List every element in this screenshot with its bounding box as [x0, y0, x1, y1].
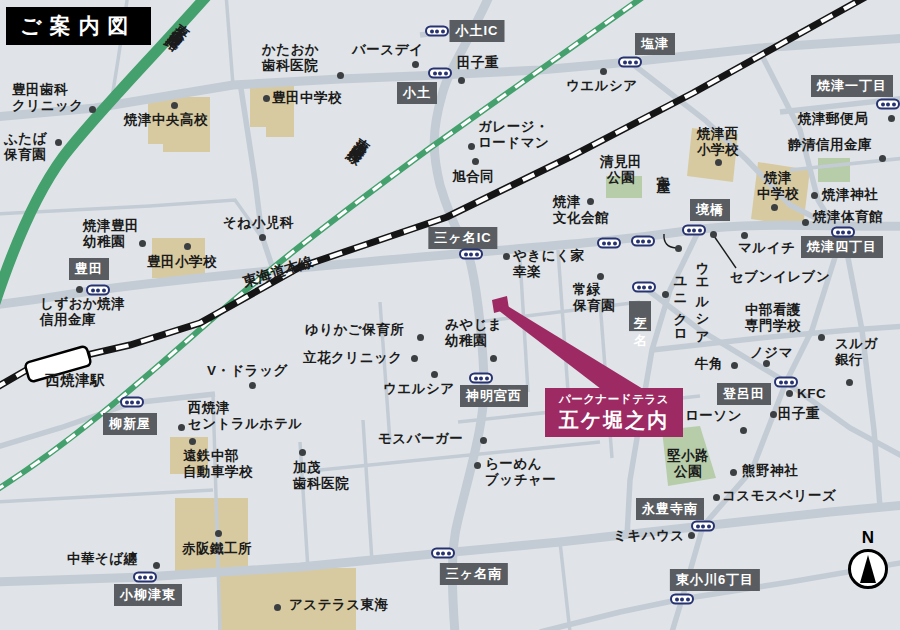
traffic-signal-icon [876, 99, 900, 110]
traffic-signal-icon [597, 238, 621, 249]
compass-n-label: N [845, 528, 891, 548]
traffic-signal-icon [670, 594, 694, 605]
main-road-vertical [434, 0, 492, 630]
poi-dot [675, 245, 682, 252]
poi-dot [786, 390, 793, 397]
poi-dot [411, 355, 418, 362]
intersection-badge: 小土IC [450, 20, 505, 42]
place-label: アステラス東海 [289, 597, 389, 613]
intersection-badge: 焼津一丁目 [811, 75, 893, 97]
intersection-badge: 登呂田 [717, 383, 771, 405]
poi-dot [249, 382, 256, 389]
poi-dot [662, 291, 669, 298]
traffic-signal-icon [774, 377, 798, 388]
place-label: 旭合同 [452, 169, 494, 185]
place-label: ガレージ・ ロードマン [478, 119, 549, 151]
poi-dot [417, 334, 424, 341]
property-pointer [498, 305, 643, 389]
property-name: 五ケ堀之内 [545, 407, 683, 434]
place-label: 豊田中学校 [272, 90, 342, 106]
poi-dot [263, 95, 270, 102]
traffic-signal-icon [428, 68, 452, 79]
poi-dot [299, 449, 306, 456]
poi-dot [178, 424, 185, 431]
guide-map: ご案内図 パークナードテラス 五ケ堀之内 N 豊田歯科 クリニックふたば 保育園… [0, 0, 900, 630]
place-label: 中部看護 専門学校 [745, 302, 801, 334]
intersection-badge: 三ヶ名IC [428, 227, 497, 249]
place-label: コスモスベリーズ [722, 488, 836, 504]
poi-dot [76, 286, 83, 293]
traffic-signal-icon [86, 285, 110, 296]
poi-dot [337, 72, 344, 79]
place-label: モスバーガー [378, 431, 463, 447]
traffic-signal-icon [682, 225, 706, 236]
place-label: みやじま 幼稚園 [445, 317, 502, 349]
poi-dot [763, 360, 770, 367]
intersection-badge: 東小川6丁目 [670, 569, 760, 591]
poi-dot [472, 158, 479, 165]
poi-dot [139, 240, 146, 247]
place-label: V・ドラッグ [207, 363, 288, 379]
place-label: 焼津体育館 [813, 209, 883, 225]
place-label: 遠鉄中部 自動車学校 [183, 448, 253, 480]
place-label: ローソン [685, 408, 742, 424]
traffic-signal-icon [631, 236, 655, 247]
place-label: 田子重 [778, 406, 820, 422]
poi-dot [184, 243, 191, 250]
place-label: 熊野神社 [742, 463, 798, 479]
traffic-signal-icon [120, 397, 144, 408]
place-label: ウエルシア [566, 78, 638, 94]
poi-dot [741, 232, 748, 239]
place-label: ゆりかご保育所 [305, 322, 404, 338]
property-name-box: パークナードテラス 五ケ堀之内 [545, 388, 683, 437]
place-label: らーめん ブッチャー [485, 456, 556, 488]
place-label: やきにく家 幸楽 [513, 248, 584, 280]
building-akasaka-ironworks [175, 498, 248, 573]
place-label: 田子重 [457, 55, 499, 71]
poi-dot [713, 494, 720, 501]
place-label: 静清信用金庫 [788, 137, 872, 153]
poi-dot [490, 355, 497, 362]
place-label: ユニクロ [672, 268, 688, 337]
place-label: 焼津 文化会館 [553, 194, 609, 226]
intersection-badge: 三ケ名 [629, 301, 651, 331]
place-label: 赤阪鐵工所 [182, 541, 252, 557]
place-label: 焼津豊田 幼稚園 [83, 218, 139, 250]
poi-dot [730, 469, 737, 476]
place-label: 堅小路 公園 [667, 448, 709, 480]
place-label: 常緑 保育園 [573, 282, 615, 314]
poi-dot [89, 106, 96, 113]
place-label: そね小児科 [223, 215, 294, 231]
poi-dot [458, 77, 465, 84]
park-area [818, 158, 850, 182]
intersection-badge: 焼津四丁目 [801, 236, 883, 258]
poi-dot [153, 562, 160, 569]
place-label: マルイチ [738, 240, 795, 256]
poi-dot [55, 139, 62, 146]
place-label: KFC [797, 386, 826, 402]
poi-dot [818, 334, 825, 341]
intersection-badge: 永豊寺南 [636, 498, 704, 520]
poi-dot [802, 219, 809, 226]
poi-dot [259, 234, 266, 241]
poi-dot [811, 192, 818, 199]
intersection-badge: 柳新屋 [103, 413, 157, 435]
poi-dot [771, 204, 778, 211]
place-label: 焼津神社 [822, 187, 878, 203]
place-label: ウエルシア [694, 252, 710, 339]
traffic-signal-icon [632, 282, 656, 293]
poi-dot [412, 61, 419, 68]
traffic-signal-icon [133, 572, 157, 583]
place-label: しずおか焼津 信用金庫 [40, 296, 125, 328]
compass-needle-icon [860, 555, 876, 583]
station-label: 西焼津駅 [45, 372, 105, 389]
map-title: ご案内図 [6, 7, 151, 45]
poi-dot [215, 530, 222, 537]
place-label: かたおか 歯科医院 [262, 42, 319, 74]
poi-dot [740, 427, 747, 434]
poi-dot [846, 379, 853, 386]
place-label: ふたば 保育園 [4, 131, 47, 163]
place-label: 中華そば纏 [67, 551, 138, 567]
place-label: 西焼津 セントラルホテル [188, 400, 303, 432]
place-label: 豊田歯科 クリニック [12, 82, 84, 114]
property-brand: パークナードテラス [545, 392, 683, 407]
place-label: 牛角 [695, 356, 723, 372]
traffic-signal-icon [618, 57, 642, 68]
place-label: 焼津 中学校 [757, 170, 799, 202]
intersection-badge: 小柳津東 [114, 584, 182, 606]
place-label: 焼津中央高校 [124, 112, 208, 128]
traffic-signal-icon [691, 521, 715, 532]
poi-dot [431, 371, 438, 378]
place-label: 立花クリニック [303, 350, 403, 366]
place-label: 清見田 公園 [600, 154, 642, 186]
intersection-badge: 塩津 [635, 33, 675, 55]
poi-dot [189, 438, 196, 445]
poi-dot [171, 102, 178, 109]
poi-dot [480, 437, 487, 444]
place-label: ミキハウス [613, 528, 685, 544]
compass: N [845, 528, 891, 589]
place-label: セブンイレブン [730, 269, 830, 285]
poi-dot [688, 532, 695, 539]
poi-dot [715, 159, 722, 166]
intersection-badge: 境橋 [690, 199, 730, 221]
poi-dot [888, 115, 895, 122]
traffic-signal-icon [831, 227, 855, 238]
place-label: 焼津西 小学校 [697, 126, 739, 158]
intersection-badge: 小土 [397, 82, 437, 104]
poi-dot [468, 143, 475, 150]
place-label: スルガ 銀行 [835, 336, 878, 368]
place-label: 加茂 歯科医院 [293, 460, 349, 492]
poi-dot [597, 273, 604, 280]
compass-circle [848, 549, 888, 589]
poi-dot [587, 198, 594, 205]
place-label: ウエルシア [383, 381, 455, 397]
intersection-badge: 豊田 [69, 258, 109, 280]
poi-dot [274, 604, 281, 611]
place-label: 富士屋 [655, 165, 671, 171]
poi-dot [503, 253, 510, 260]
poi-dot [474, 462, 481, 469]
traffic-signal-icon [459, 249, 483, 260]
traffic-signal-icon [469, 373, 493, 384]
poi-dot [710, 231, 717, 238]
intersection-badge: 三ヶ名南 [440, 563, 508, 585]
place-label: ノジマ [750, 345, 793, 361]
place-label: バースデイ [352, 42, 423, 58]
poi-dot [731, 362, 738, 369]
place-label: 豊田小学校 [147, 254, 217, 270]
place-label: 焼津郵便局 [798, 111, 868, 127]
poi-dot [879, 155, 886, 162]
poi-dot [770, 411, 777, 418]
traffic-signal-icon [431, 548, 455, 559]
intersection-badge: 神明宮西 [460, 385, 528, 407]
poi-dot [600, 68, 607, 75]
traffic-signal-icon [425, 26, 449, 37]
